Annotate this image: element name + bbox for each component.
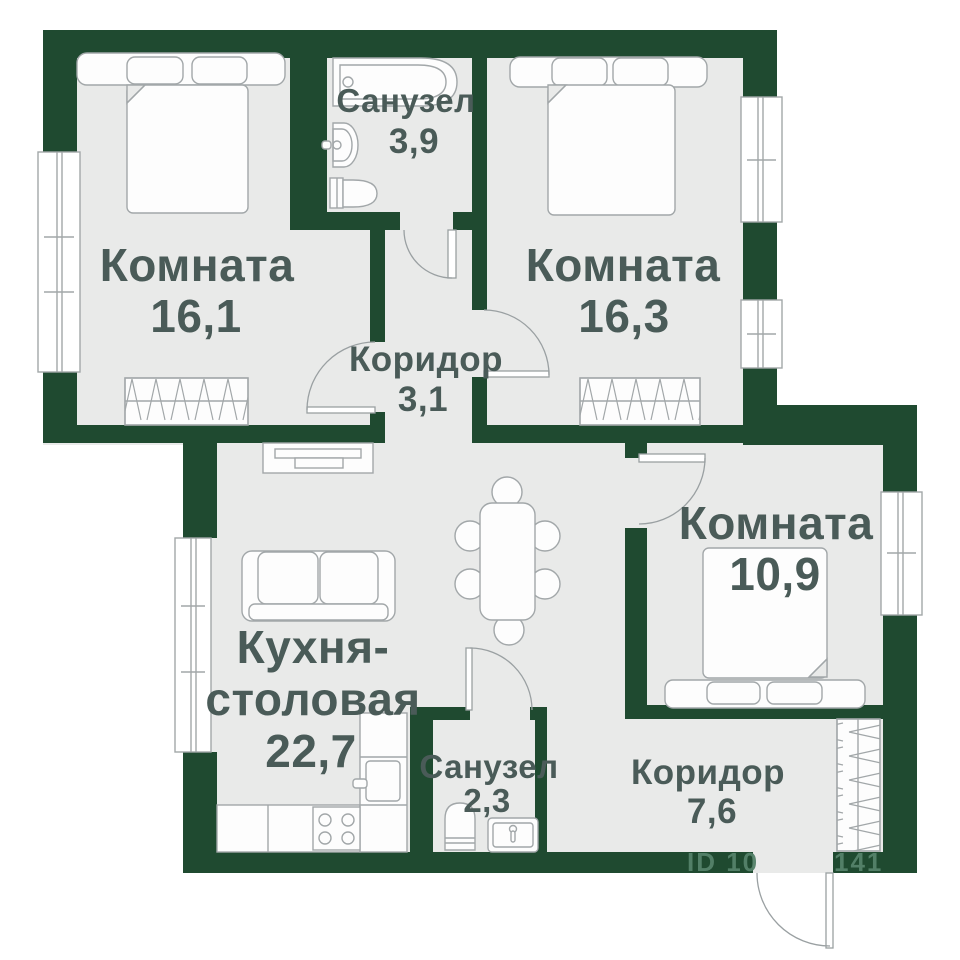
wall-segment [183,443,217,538]
wall-segment [883,445,917,492]
floor-plan: Комната 16,1 Санузел 3,9 Комната 16,3 Ко… [0,0,960,960]
window-room2-right-lower [741,300,782,368]
corridor1-area: 3,1 [398,382,448,417]
wardrobe-room1 [125,378,248,425]
dining-table [480,503,535,620]
wall-segment [43,58,77,152]
wall-segment [370,412,385,426]
toilet-icon-bath1 [330,178,377,208]
wall-segment [625,528,647,707]
wall-segment [883,615,917,873]
wall-segment [183,852,753,873]
entrance-door [757,873,833,948]
watermark-id-right: 141 [834,849,883,875]
wall-segment [410,720,433,852]
wall-segment [472,377,487,425]
wardrobe-corridor [837,719,880,851]
bathroom2-area: 2,3 [463,784,510,817]
window-room1-left [38,152,80,372]
watermark-id-left: ID 10 [687,849,759,875]
room2-area: 16,3 [578,293,670,339]
room3-area: 10,9 [729,551,821,597]
room3-name: Комната [679,500,874,546]
bathroom2-name: Санузел [419,750,558,783]
wall-segment [370,230,385,342]
corridor2-name: Коридор [631,755,785,790]
sink-icon-bath2 [488,818,538,852]
corridor1-name: Коридор [349,342,503,377]
kitchen-area: 22,7 [265,728,357,774]
window-room2-right-upper [741,97,782,222]
stove-icon [313,807,360,850]
wardrobe-room2 [580,378,700,425]
wall-segment [743,58,777,97]
tv-stand [263,443,373,473]
room1-name: Комната [100,242,295,288]
window-room3-right [881,492,922,615]
bathroom1-area: 3,9 [389,124,439,159]
corridor2-area: 7,6 [687,794,737,829]
wall-segment [743,368,777,408]
room2-name: Комната [526,242,721,288]
kitchen-name-line1: Кухня- [237,624,390,670]
wall-segment [743,405,917,445]
kitchen-name-line2: столовая [205,676,420,722]
wall-segment [43,425,385,443]
wall-segment [290,212,400,230]
sofa [242,551,395,621]
room1-area: 16,1 [150,293,242,339]
bathroom1-name: Санузел [336,84,475,117]
wall-segment [743,222,777,300]
